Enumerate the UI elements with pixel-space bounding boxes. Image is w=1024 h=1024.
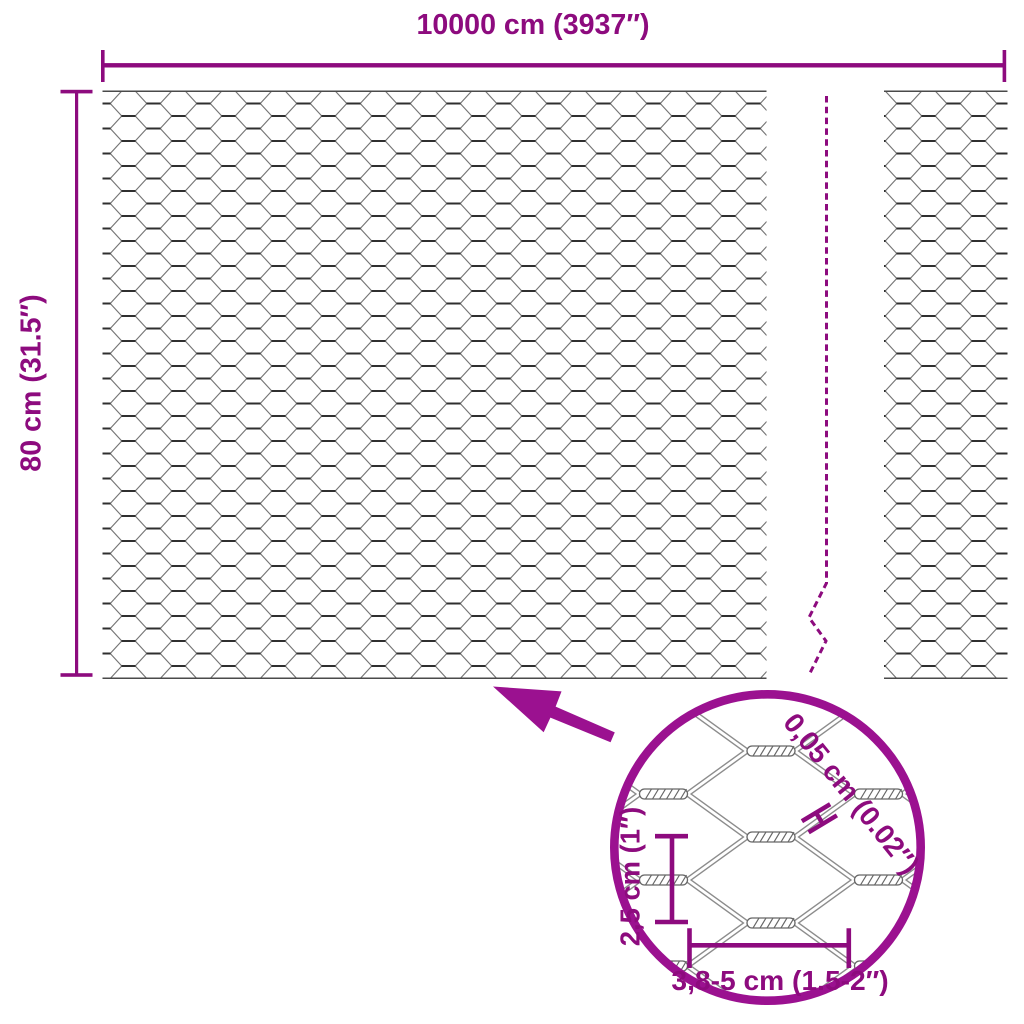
svg-text:10000 cm (3937″): 10000 cm (3937″) xyxy=(416,9,649,41)
svg-text:2,5 cm (1″): 2,5 cm (1″) xyxy=(615,807,646,946)
svg-text:80 cm (31.5″): 80 cm (31.5″) xyxy=(16,294,48,471)
svg-text:3,8-5 cm (1.5-2″): 3,8-5 cm (1.5-2″) xyxy=(671,964,888,996)
